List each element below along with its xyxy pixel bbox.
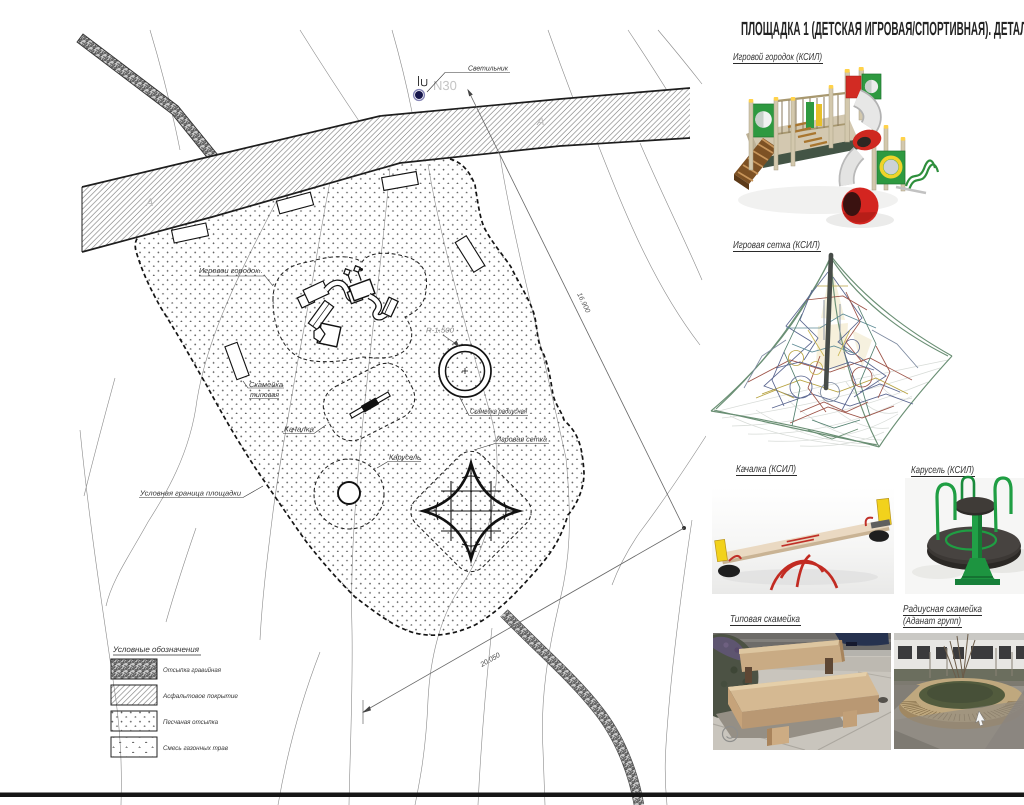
svg-text:Асфальтовое покрытие: Асфальтовое покрытие xyxy=(162,693,238,700)
svg-text:Игровая сетка: Игровая сетка xyxy=(496,435,547,444)
svg-text:N30: N30 xyxy=(433,78,457,93)
svg-text:Условная граница площадки: Условная граница площадки xyxy=(139,489,241,498)
svg-text:Скамейка радиусная: Скамейка радиусная xyxy=(470,407,527,416)
svg-text:Игровой городок (КСИЛ): Игровой городок (КСИЛ) xyxy=(733,52,822,63)
svg-text:Условные обозначения: Условные обозначения xyxy=(112,645,200,654)
svg-text:А: А xyxy=(145,197,153,209)
svg-text:Отсыпка гравийная: Отсыпка гравийная xyxy=(163,667,221,674)
svg-text:ПЛОЩАДКА 1 (ДЕТСКАЯ ИГРОВАЯ/СП: ПЛОЩАДКА 1 (ДЕТСКАЯ ИГРОВАЯ/СПОРТИВНАЯ).… xyxy=(741,19,1024,40)
svg-text:Светильник: Светильник xyxy=(468,64,509,73)
svg-text:Карусель (КСИЛ): Карусель (КСИЛ) xyxy=(911,465,974,476)
svg-text:Радиусная скамейка: Радиусная скамейка xyxy=(903,604,982,615)
svg-text:Игровои городок..: Игровои городок.. xyxy=(199,266,263,275)
svg-text:Песчаная отсыпка: Песчаная отсыпка xyxy=(163,719,218,726)
svg-text:Качалка: Качалка xyxy=(284,425,314,434)
svg-text:Игровая сетка (КСИЛ): Игровая сетка (КСИЛ) xyxy=(733,240,820,251)
svg-text:Смесь газонных трав: Смесь газонных трав xyxy=(163,745,229,752)
svg-text:Скамейка: Скамейка xyxy=(249,380,283,389)
svg-text:Качалка (КСИЛ): Качалка (КСИЛ) xyxy=(736,464,796,475)
svg-text:А: А xyxy=(536,116,544,128)
svg-text:R-1.500: R-1.500 xyxy=(426,328,454,335)
svg-text:типовая: типовая xyxy=(250,390,279,399)
svg-text:Типовая скамейка: Типовая скамейка xyxy=(730,614,800,625)
svg-text:(Аданат групп): (Аданат групп) xyxy=(903,616,961,627)
svg-text:Карусель: Карусель xyxy=(389,453,421,462)
